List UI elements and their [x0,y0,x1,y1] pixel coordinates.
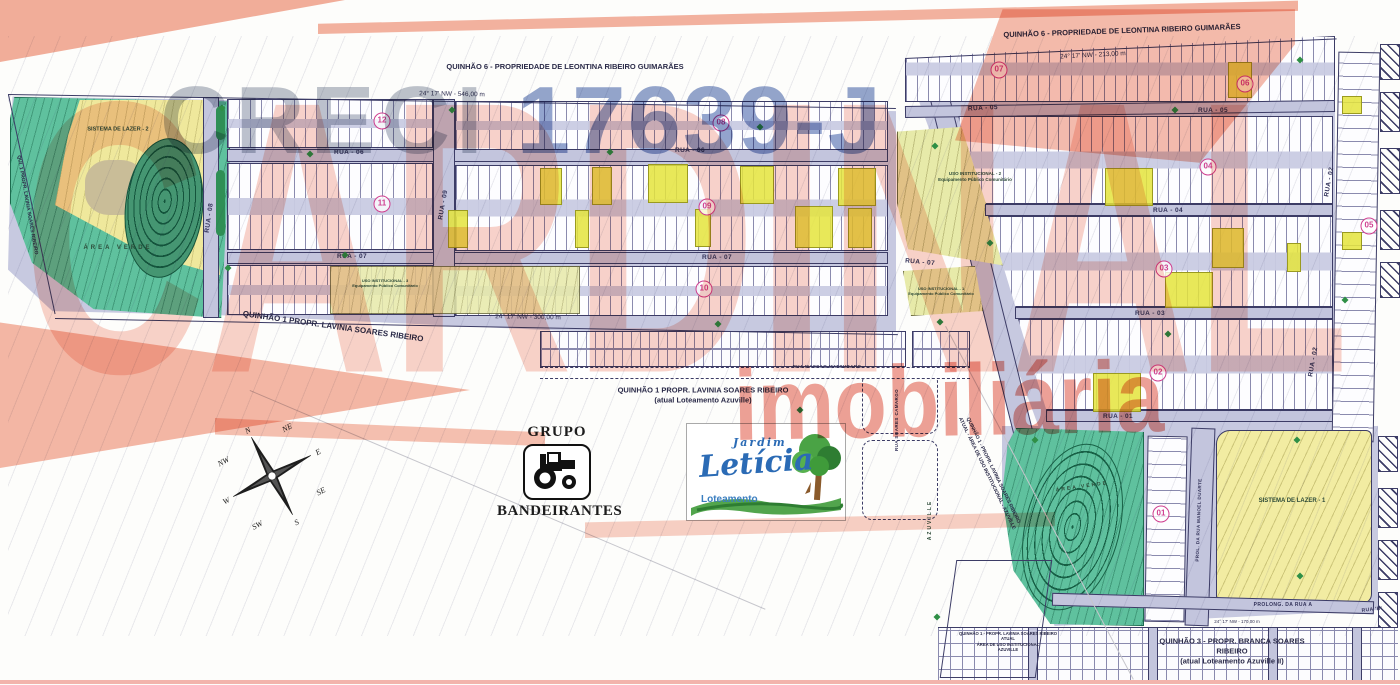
block-row-08 [455,101,888,150]
block-row-12 [227,99,433,148]
area-label: USO INSTITUCIONAL - 2 Equipamento Públic… [938,171,1012,183]
ownership-label: QUINHÃO 3 - PROPR. BRANCA SOARES RIBEIRO… [1148,636,1316,665]
street-label: RUA - 07 [337,253,367,261]
svg-text:N: N [242,425,252,436]
hatched-strip [1380,210,1400,250]
highlighted-lot [648,164,688,203]
quadra-badge: 04 [1200,159,1217,176]
quadra-badge: 10 [696,281,713,298]
hatched-strip [1378,436,1398,472]
highlighted-lot [1165,272,1213,308]
street-label: RUA - 04 [1153,207,1183,215]
grupo-logo-bottom-text: BANDEIRANTES [497,503,617,520]
highlighted-lot [838,168,876,206]
ownership-label: QUINHÃO 6 - PROPRIEDADE DE LEONTINA RIBE… [1003,22,1240,40]
quadra-badge: 12 [374,113,391,130]
parking-strip [540,331,906,367]
street-band-rua06 [227,149,888,162]
plat-map-canvas: QUINHÃO 6 - PROPRIEDADE DE LEONTINA RIBE… [0,0,1400,685]
svg-text:NE: NE [280,421,294,434]
quadra-badge: 11 [374,196,391,213]
watermark-corner-triangle [0,0,345,62]
block-row-01 [1144,436,1187,623]
bottom-grid-gap [1352,627,1362,683]
street-median [216,170,225,236]
highlighted-lot [1093,373,1141,412]
hatched-strip [1380,44,1400,80]
street-label: RUA - 06 [334,149,364,157]
ownership-label: QUINHÃO 6 - PROPRIEDADE DE LEONTINA RIBE… [446,62,683,72]
parking-strip [912,331,970,367]
street-median [216,106,225,140]
area-label: USO INSTITUCIONAL - 1 Equipamento Públic… [908,286,974,296]
highlighted-lot [1287,243,1301,272]
ownership-label: QUINHÃO 1 - PROPR. LAVINIA SOARES RIBEIR… [959,631,1057,653]
dimension-label: 24° 17' NW - 546,00 m [419,90,485,100]
compass-rose-icon: N NE E SE S SW W NW [210,414,334,538]
tractor-icon [532,452,582,492]
svg-text:SE: SE [315,485,327,497]
quadra-badge: 05 [1361,218,1378,235]
street-label: RUA - 07 [905,257,936,268]
tree-icon [937,319,944,326]
block-row-11 [227,163,433,250]
grupo-bandeirantes-logo: GRUPO BANDEIRANTES [497,424,617,520]
jardim-leticia-logo: Jardim Letícia Loteamento [686,423,846,521]
highlighted-lot [592,167,612,205]
block-row-A [905,36,1335,102]
road-matsubaro [540,367,970,379]
lazer-area-1 [1216,430,1372,604]
quadra-badge: 09 [699,199,716,216]
street-label: RUA SOARES CAMARGO [894,389,900,451]
street-label: RUA - 07 [702,254,732,262]
tree-icon [797,407,804,414]
street-label: RUA - 01 [1103,413,1133,421]
street-label: PROLONG. DA RUA A [1254,602,1313,609]
area-label: ÁREA VERDE [83,245,152,253]
neighbor-outline [940,560,1053,678]
neighbor-outline [862,372,938,434]
svg-text:W: W [221,495,232,507]
street-label: RUA - 05 [968,104,998,114]
area-label: SISTEMA DE LAZER - 1 [1259,498,1326,506]
street-band-rua03 [1015,307,1333,319]
inst-area-3 [330,266,580,314]
hatched-strip [1380,148,1400,194]
street-label: RUA - 05 [1198,107,1228,115]
grupo-logo-top-text: GRUPO [497,424,617,441]
svg-text:S: S [293,517,301,527]
quadra-badge: 06 [1237,76,1254,93]
highlighted-lot [540,168,562,205]
quadra-badge: 03 [1156,261,1173,278]
svg-text:E: E [313,447,323,458]
highlighted-lot [1342,96,1362,114]
svg-text:SW: SW [251,518,266,532]
area-label: USO INSTITUCIONAL - 3 Equipamento Públic… [352,278,418,288]
highlighted-lot [848,208,872,248]
tractor-box [523,444,591,500]
highlighted-lot [448,210,468,248]
hatched-strip [1380,92,1400,132]
quadra-badge: 02 [1150,365,1167,382]
leticia-logo-subtitle: Loteamento [701,494,758,505]
scan-bottom-pink-line [0,680,1400,684]
highlighted-lot [795,206,833,248]
quadra-badge: 08 [713,115,730,132]
ownership-label: QUINHÃO 1 PROPR. LAVINIA SOARES RIBEIRO … [618,385,789,405]
highlighted-lot [575,210,589,248]
street-label: RUA - 03 [1135,310,1165,318]
hatched-strip [1380,262,1400,298]
highlighted-lot [1342,232,1362,250]
hatched-strip [1378,540,1398,580]
area-label: AZUVILLE [927,500,934,540]
street-band-rua07 [227,252,888,264]
tree-icon [934,614,941,621]
highlighted-lot [740,166,774,204]
quadra-badge: 07 [991,62,1008,79]
area-label: SISTEMA DE LAZER - 2 [87,126,148,133]
highlighted-lot [1105,168,1153,206]
hatched-strip [1378,488,1398,528]
street-band-rua01 [1046,410,1333,422]
highlighted-lot [1212,228,1244,268]
dimension-label: 24° 17' NW - 300,00 m [495,313,561,323]
svg-text:NW: NW [215,454,232,469]
quadra-badge: 01 [1153,506,1170,523]
block-row-D [1018,319,1333,410]
street-label: RUA MASSAO MATSUBARO [793,364,862,370]
street-label: RUA - 06 [675,147,705,155]
dimension-label: 24° 17' NW - 170,00 m [1214,619,1259,625]
